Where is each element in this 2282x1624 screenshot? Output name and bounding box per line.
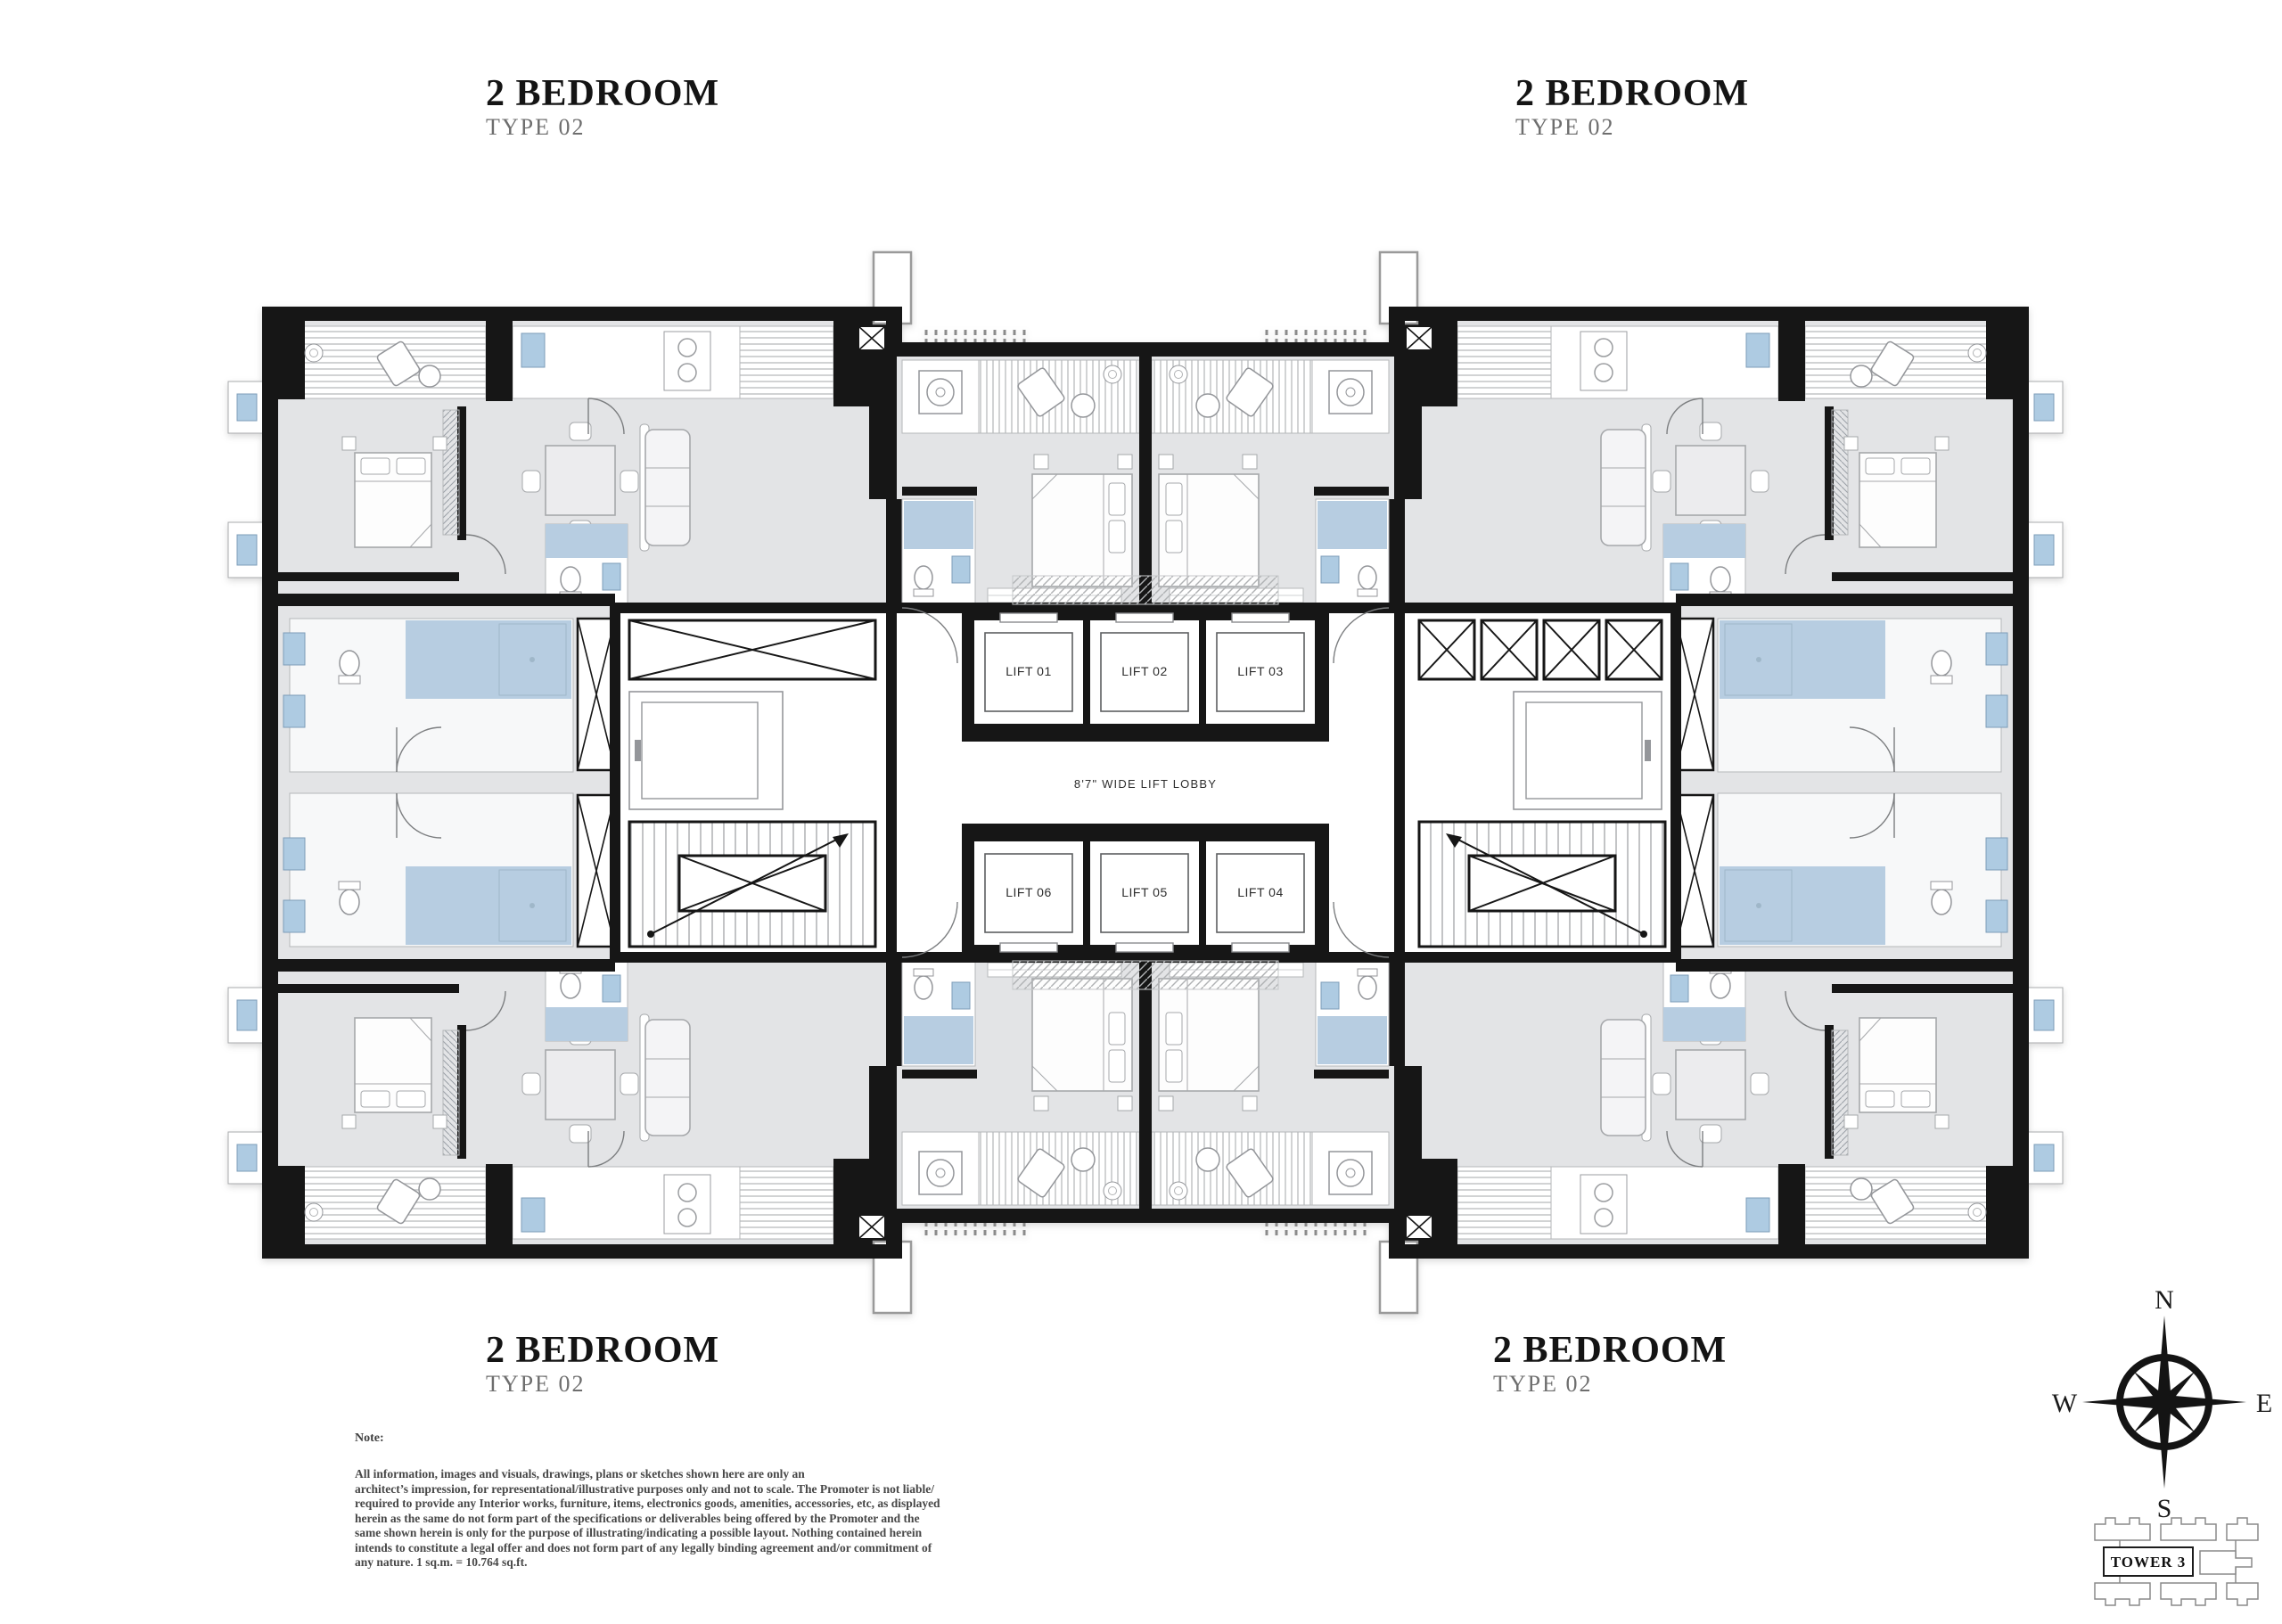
note-line: herein as the same do not form part of t… — [355, 1512, 943, 1527]
tower-label: TOWER 3 — [2111, 1554, 2187, 1571]
note-line: any nature. 1 sq.m. = 10.764 sq.ft. — [355, 1555, 943, 1571]
note-line: architect’s impression, for representati… — [355, 1482, 943, 1497]
lift-04-label: LIFT 04 — [1237, 885, 1284, 899]
floor-plan-drawing: LIFT 01 LIFT 02 LIFT 03 LIFT 06 LIFT 05 … — [0, 0, 2282, 1624]
lift-05-label: LIFT 05 — [1121, 885, 1168, 899]
compass-rose-icon: N S W E — [2048, 1282, 2280, 1522]
note-line: All information, images and visuals, dra… — [355, 1467, 943, 1482]
service-lift — [1514, 692, 1662, 809]
compass-north-label: N — [2155, 1285, 2174, 1315]
disclaimer-note: Note: All information, images and visual… — [355, 1431, 943, 1571]
note-line: same shown herein is only for the purpos… — [355, 1526, 943, 1541]
floorplan-page: 2 BEDROOM TYPE 02 2 BEDROOM TYPE 02 2 BE… — [0, 0, 2282, 1624]
lift-02-label: LIFT 02 — [1121, 664, 1168, 678]
staircase-icon — [629, 822, 875, 947]
note-line: required to provide any Interior works, … — [355, 1497, 943, 1512]
note-line: intends to constitute a legal offer and … — [355, 1541, 943, 1556]
lift-06-label: LIFT 06 — [1006, 885, 1052, 899]
compass-east-label: E — [2256, 1389, 2272, 1418]
lift-lobby-label: 8'7" WIDE LIFT LOBBY — [1074, 777, 1217, 791]
service-lift — [629, 692, 783, 809]
key-plan-icon: TOWER 3 — [2084, 1508, 2276, 1615]
staircase-icon — [1419, 822, 1665, 947]
note-heading: Note: — [355, 1431, 943, 1446]
lift-03-label: LIFT 03 — [1237, 664, 1284, 678]
lift-01-label: LIFT 01 — [1006, 664, 1052, 678]
compass-west-label: W — [2052, 1389, 2078, 1418]
